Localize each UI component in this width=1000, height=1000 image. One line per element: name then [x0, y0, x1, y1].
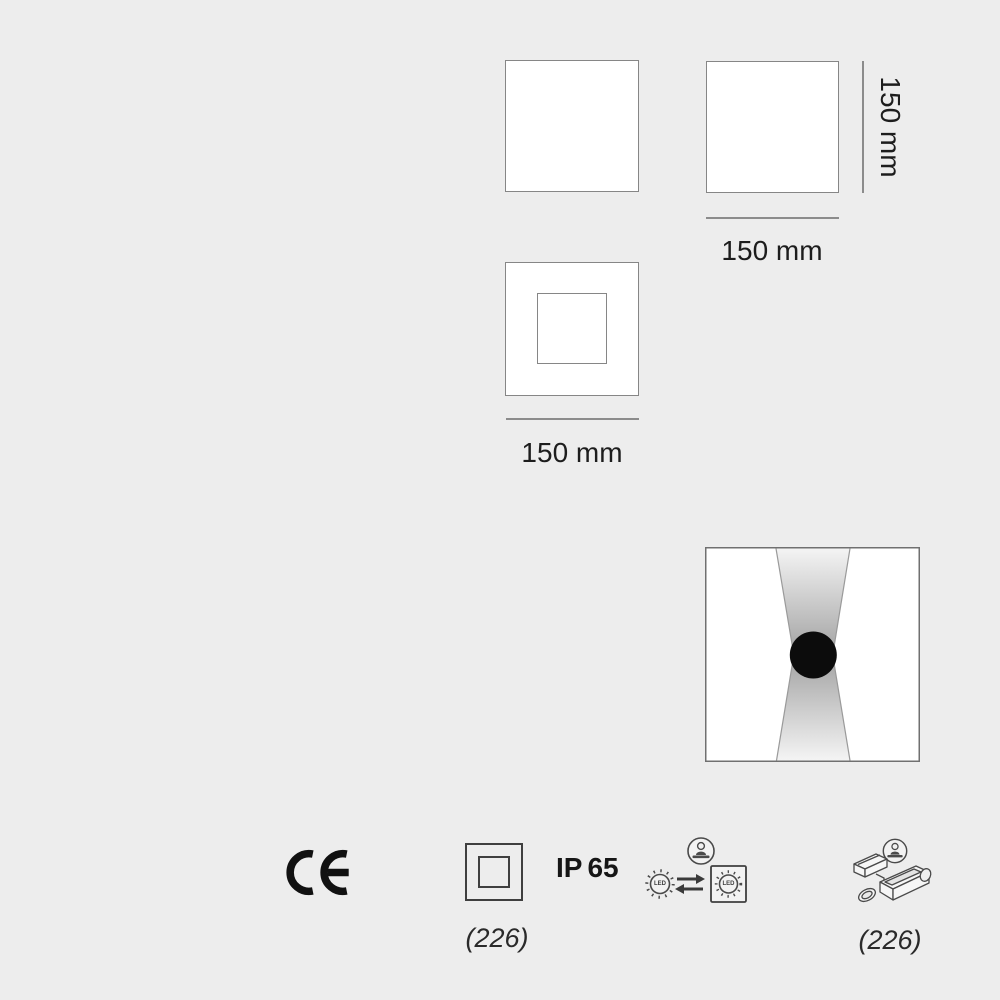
frame-view-inner-square — [537, 293, 607, 364]
double-insulation-inner-square — [478, 856, 510, 888]
ip-prefix: IP — [556, 852, 582, 883]
top-view-square — [505, 60, 639, 192]
product-spec-sheet: 150 mm 150 mm 150 mm — [0, 0, 1000, 1000]
large-housing-box — [880, 866, 932, 900]
height-dimension-line — [862, 61, 864, 193]
frame-width-dimension-line — [506, 418, 639, 420]
up-down-beam-icon — [705, 547, 920, 762]
installer-person-icon — [688, 838, 714, 864]
replaceable-led-icon: LED LED — [633, 828, 748, 910]
frame-width-dimension-label: 150 mm — [512, 437, 632, 469]
double-insulation-square-icon — [465, 843, 523, 901]
housing-accessory-code: (226) — [830, 925, 950, 956]
swap-arrows-icon — [675, 874, 705, 894]
round-cap-part — [856, 886, 877, 904]
led-bulb-icon: LED — [647, 871, 673, 897]
front-view-square — [706, 61, 839, 193]
svg-text:LED: LED — [723, 881, 736, 887]
small-housing-box — [854, 854, 887, 877]
ce-mark-icon — [286, 848, 352, 897]
height-dimension-label: 150 mm — [874, 67, 906, 187]
ip-rating-label: IP65 — [556, 852, 619, 884]
width-dimension-label: 150 mm — [712, 235, 832, 267]
width-dimension-line — [706, 217, 839, 219]
recessed-housing-kit-icon — [846, 830, 932, 910]
class2-accessory-code: (226) — [437, 923, 557, 954]
ip-value: 65 — [587, 852, 618, 883]
light-source-spot — [790, 632, 837, 679]
svg-text:LED: LED — [654, 881, 667, 887]
